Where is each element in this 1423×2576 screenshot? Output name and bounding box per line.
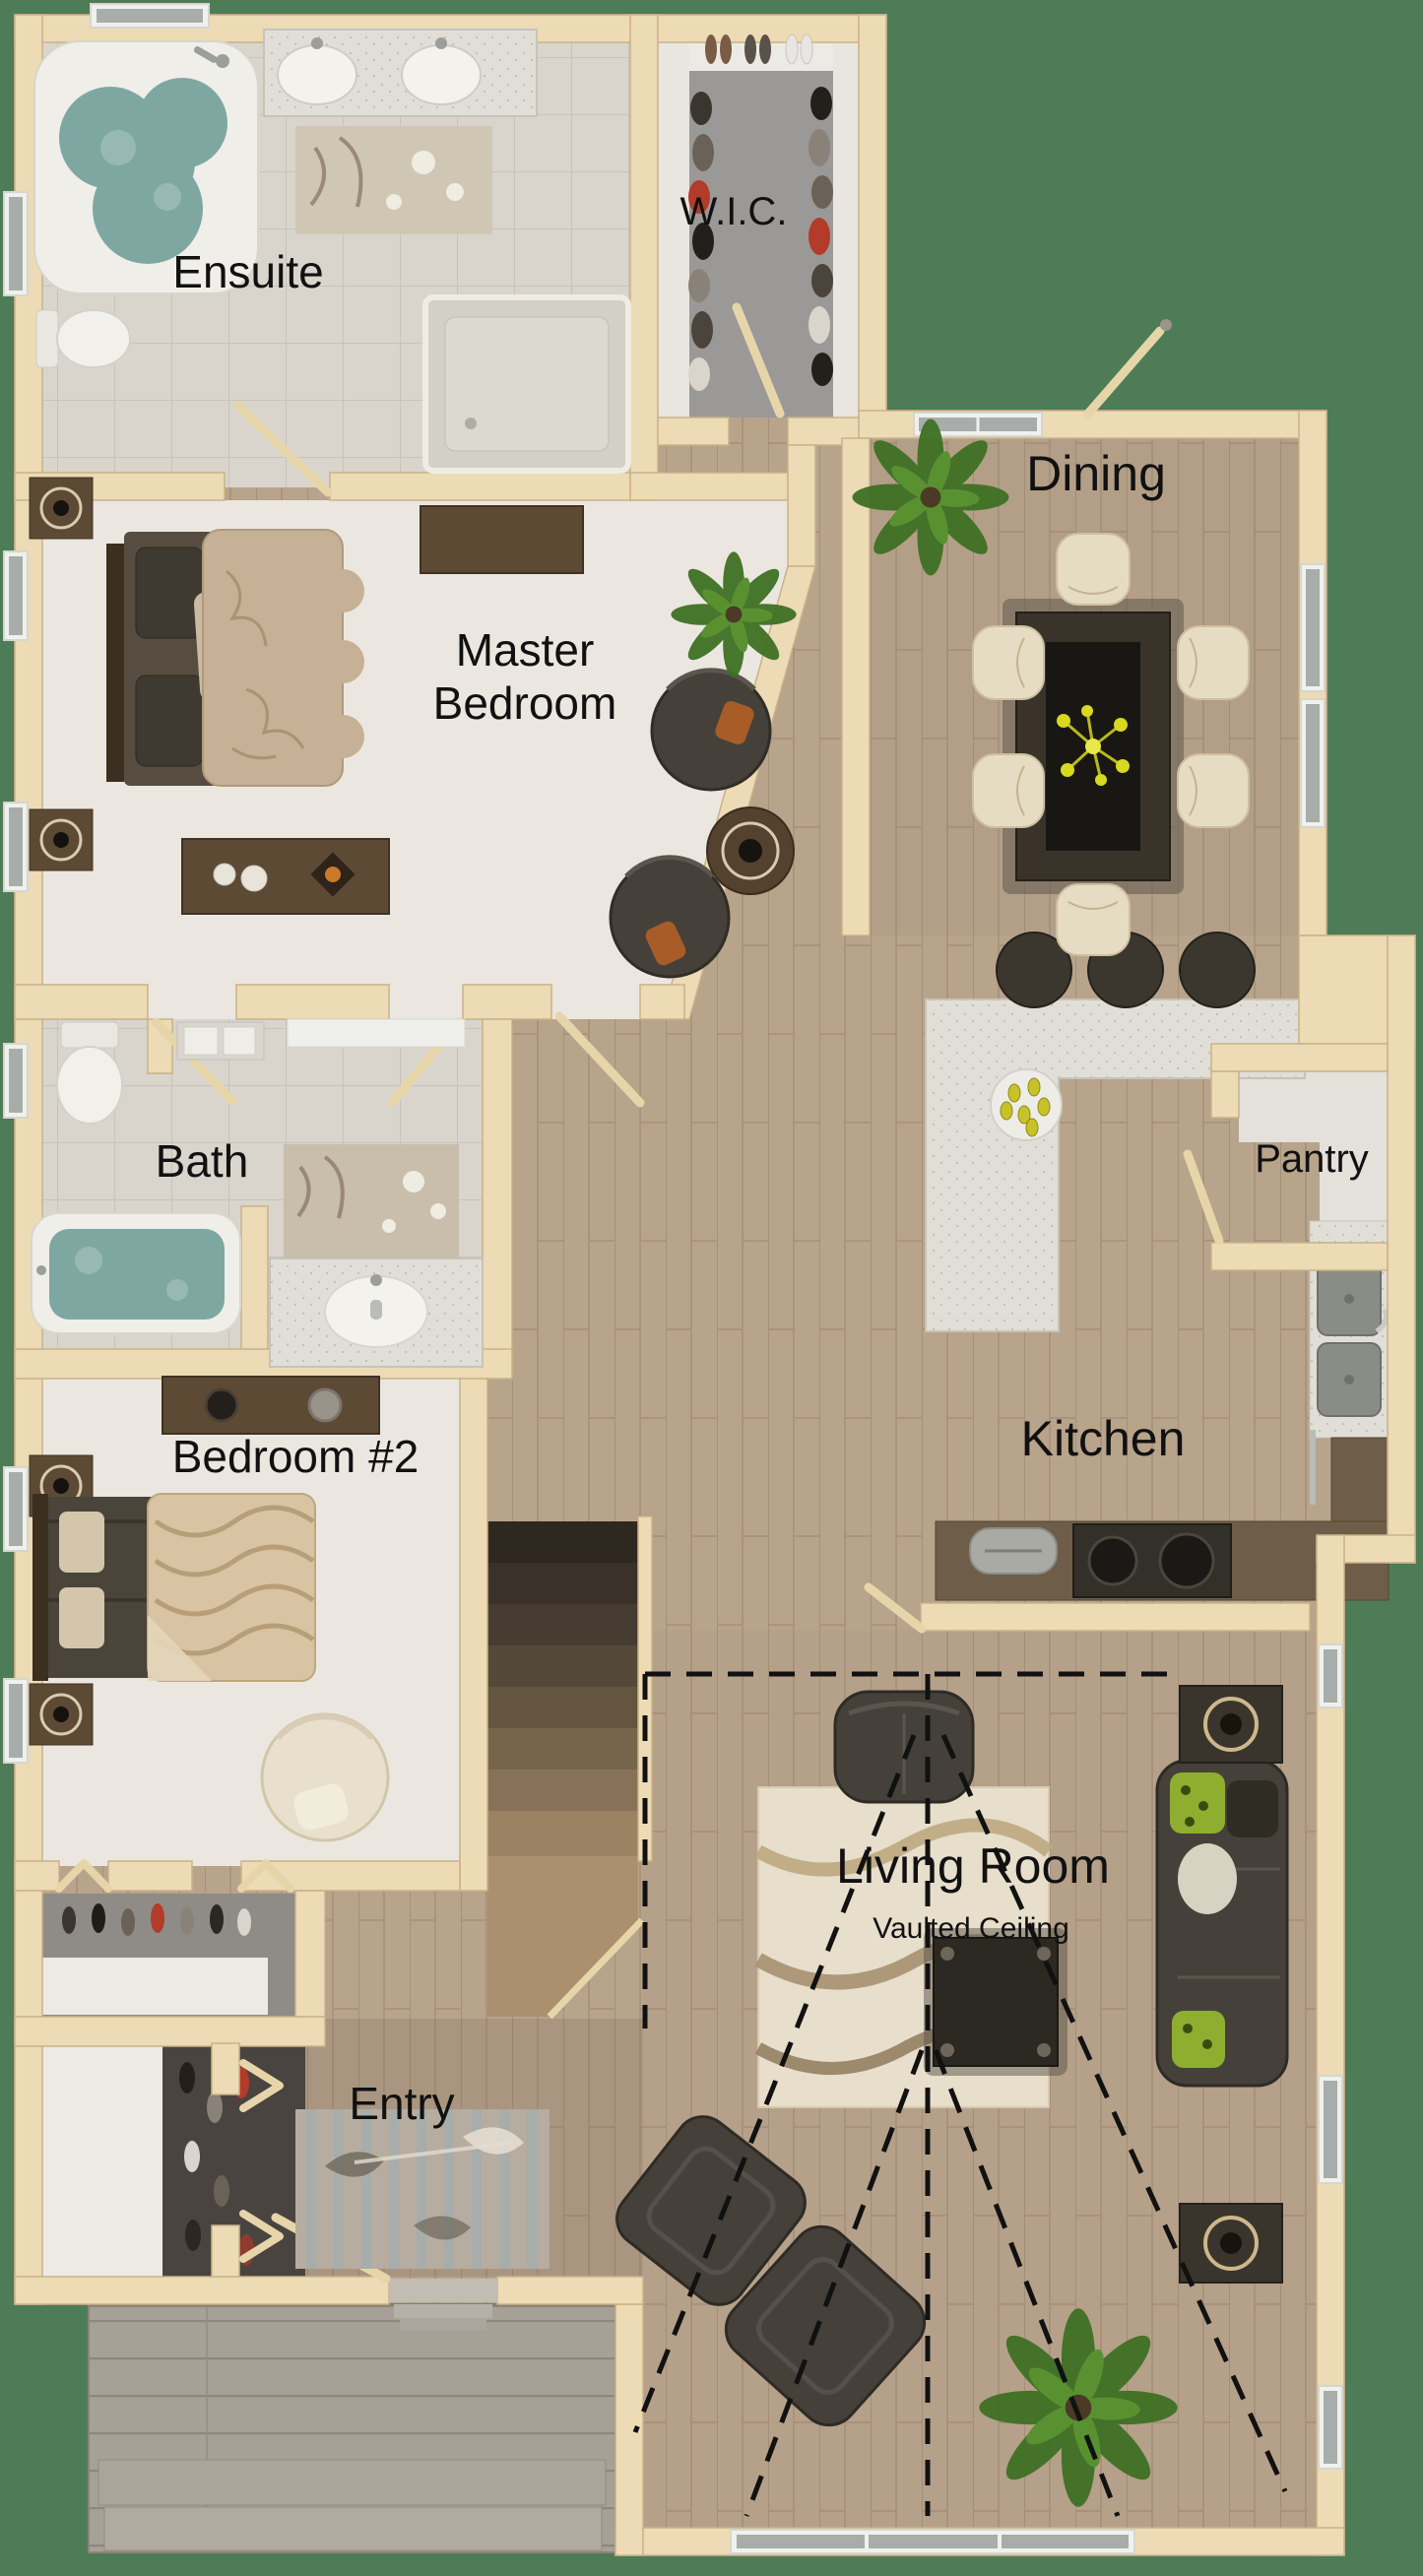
room-label-kitchen: Kitchen	[1021, 1411, 1186, 1466]
nightstand	[30, 1684, 93, 1745]
kitchen-corner-counter	[1331, 1438, 1389, 1526]
toaster	[970, 1528, 1057, 1574]
round-side-table	[707, 807, 794, 894]
palm-plant	[853, 419, 1009, 576]
sofa	[1157, 1761, 1287, 2086]
plant	[979, 2308, 1177, 2506]
bed	[32, 1494, 315, 1681]
room-label-dining: Dining	[1026, 446, 1166, 501]
front-door-threshold	[389, 2279, 497, 2302]
deck-step	[98, 2460, 606, 2505]
vanity-sink	[270, 1258, 483, 1367]
master-bed	[106, 530, 364, 786]
dresser	[162, 1377, 379, 1434]
nightstand	[30, 809, 93, 870]
double-sink-vanity	[264, 30, 537, 116]
room-label-ensuite: Ensuite	[172, 246, 323, 297]
round-chair	[262, 1714, 388, 1840]
window	[1319, 1644, 1342, 1707]
window	[4, 803, 28, 891]
ensuite-rug	[295, 126, 492, 234]
front-door-step	[394, 2304, 492, 2318]
window	[91, 4, 209, 28]
shower	[425, 297, 628, 471]
pillow	[1170, 1772, 1225, 1834]
window	[4, 192, 28, 295]
deck	[89, 2306, 615, 2552]
window	[1301, 564, 1325, 691]
room-label-master-line2: Bedroom	[433, 677, 617, 729]
room-label-living: Living Room	[836, 1838, 1110, 1894]
round-chair	[652, 671, 770, 790]
toilet	[36, 310, 130, 367]
room-label-master-line1: Master	[456, 624, 595, 676]
bedroom2-closet	[15, 1894, 295, 2017]
pillow	[1227, 1780, 1278, 1837]
pillow	[1172, 2011, 1225, 2068]
room-sublabel-living: Vaulted Ceiling	[873, 1912, 1069, 1945]
entry-rug	[295, 2109, 550, 2269]
floor-plan: Ensuite W.I.C. Dining Master Bedroom Bat…	[0, 0, 1423, 2576]
side-table	[1180, 2204, 1282, 2283]
side-table	[1180, 1686, 1282, 1763]
bath-rug	[284, 1144, 459, 1257]
pillow	[1178, 1843, 1237, 1914]
window	[1319, 2076, 1342, 2183]
toilet	[57, 1022, 122, 1124]
window	[4, 1679, 28, 1763]
bath-window	[288, 1019, 465, 1047]
window	[4, 551, 28, 640]
window	[4, 1467, 28, 1551]
window	[1319, 2386, 1342, 2469]
room-label-pantry: Pantry	[1255, 1137, 1369, 1181]
bench	[182, 839, 389, 914]
room-label-entry: Entry	[349, 2078, 454, 2129]
bathtub	[32, 1213, 240, 1333]
window	[4, 1044, 28, 1118]
nightstand	[30, 478, 93, 539]
bay-window	[731, 2530, 1134, 2553]
stairs	[487, 1521, 642, 2017]
deck-step	[104, 2507, 602, 2550]
room-label-bath: Bath	[156, 1135, 249, 1187]
room-label-bedroom2: Bedroom #2	[172, 1431, 420, 1482]
stove	[1073, 1524, 1231, 1597]
fridge-handle	[1310, 1430, 1316, 1505]
room-label-wic: W.I.C.	[680, 190, 788, 233]
loveseat	[835, 1692, 973, 1802]
plant	[671, 551, 796, 676]
fruit-plate	[991, 1069, 1062, 1140]
front-door-step	[400, 2318, 486, 2330]
towel-shelf	[177, 1022, 264, 1060]
dresser	[420, 506, 583, 573]
window	[1301, 699, 1325, 827]
round-chair	[611, 858, 729, 977]
coffee-table	[924, 1928, 1067, 2076]
